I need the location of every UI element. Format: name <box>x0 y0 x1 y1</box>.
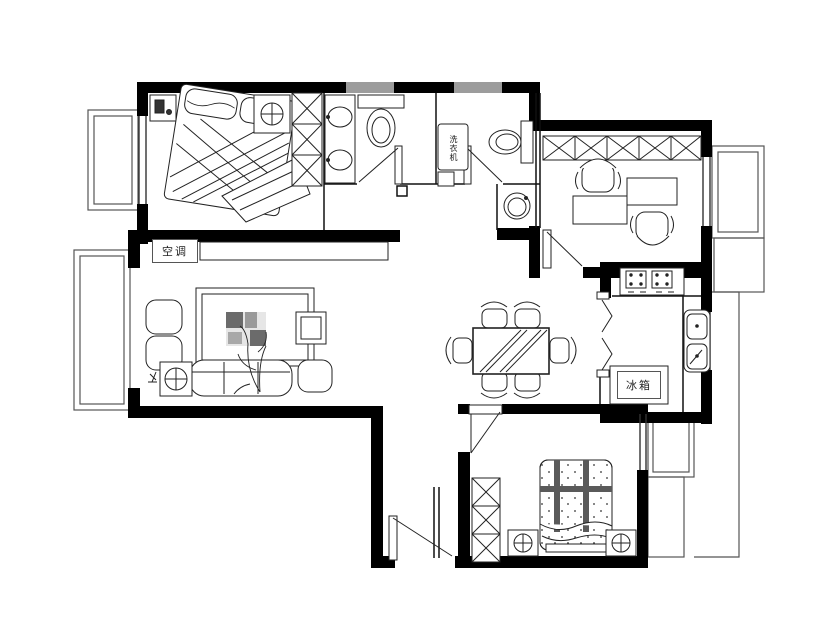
dining-chair <box>514 302 540 328</box>
window-bath <box>346 82 394 93</box>
bedroom2 <box>472 460 636 562</box>
door-bath <box>395 146 402 184</box>
balcony-top-left <box>88 110 138 210</box>
dining-chair <box>550 337 576 364</box>
desk <box>573 196 627 224</box>
fridge-label: 冰箱 <box>617 371 661 399</box>
door-kitchen-folding <box>602 300 612 332</box>
wardrobe-bedroom2 <box>472 478 500 562</box>
kitchen-sink <box>684 310 710 372</box>
bed-bedroom2 <box>540 460 612 552</box>
floor-plan: 空调 冰箱 洗衣机 <box>0 0 840 630</box>
dining-chair <box>481 302 507 328</box>
round-basin <box>504 193 530 219</box>
office-chair <box>576 159 621 192</box>
living-room <box>146 242 388 396</box>
washing-machine-label: 洗衣机 <box>443 127 463 169</box>
door-bedroom2 <box>469 405 502 414</box>
bay-window-study <box>712 146 764 238</box>
armchair <box>146 300 182 334</box>
master-bedroom <box>150 84 322 222</box>
office-chair <box>631 212 674 245</box>
stove <box>620 268 684 295</box>
ac-platform <box>714 238 764 292</box>
wardrobe-master <box>292 93 322 186</box>
floor-plan-drawing <box>0 0 840 630</box>
door-study <box>543 230 551 268</box>
toilet <box>358 95 404 147</box>
cabinet-study <box>543 136 701 160</box>
air-conditioner-label: 空调 <box>152 239 198 263</box>
toilet <box>489 121 533 163</box>
nightstand-lamp <box>606 530 636 556</box>
armchair <box>298 360 332 392</box>
dining-chair <box>446 337 472 364</box>
study <box>543 136 701 245</box>
nightstand-lamp <box>508 530 538 556</box>
rug-pattern <box>226 312 266 346</box>
tv-cabinet <box>200 242 388 260</box>
dining <box>446 302 576 398</box>
balcony-living <box>74 250 130 410</box>
plant-small <box>148 372 157 382</box>
bathroom <box>325 95 404 183</box>
sofa <box>190 360 292 396</box>
dining-chair <box>481 372 507 398</box>
dining-chair <box>514 372 540 398</box>
window-laundry <box>454 82 502 93</box>
desk <box>627 178 677 205</box>
door-entry <box>389 516 397 560</box>
dining-table <box>473 328 549 374</box>
